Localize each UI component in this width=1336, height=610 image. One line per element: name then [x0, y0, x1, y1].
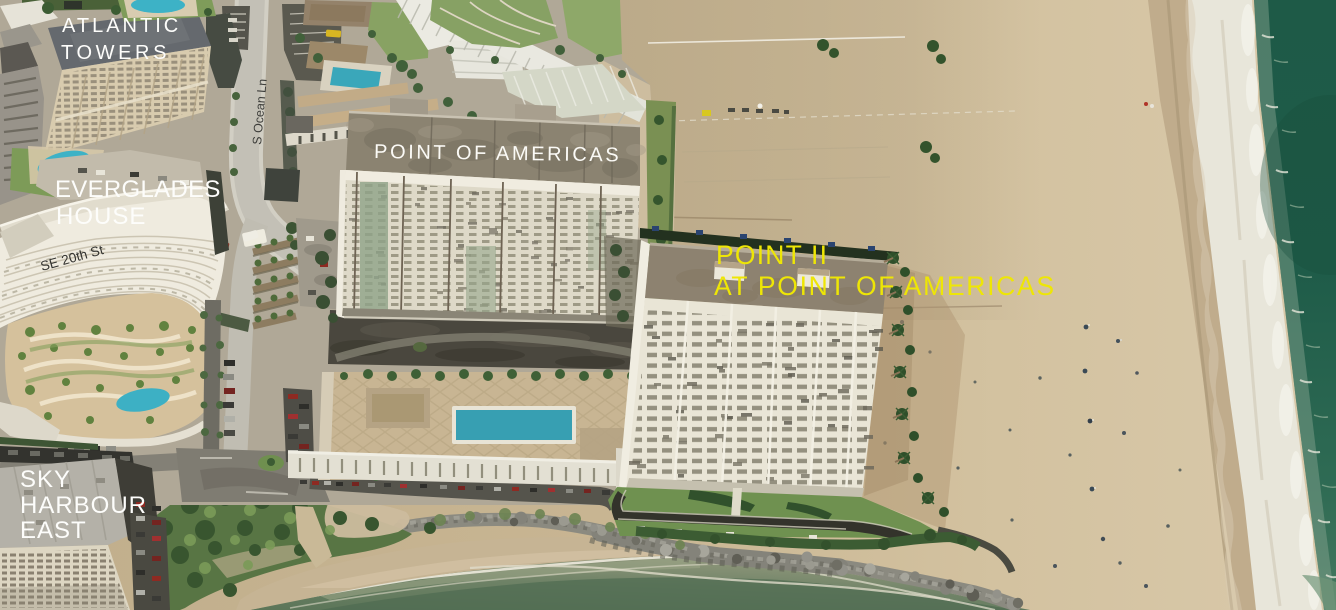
- svg-text:HOUSE: HOUSE: [56, 203, 146, 230]
- svg-text:SKY: SKY: [20, 466, 71, 493]
- svg-text:EAST: EAST: [20, 517, 87, 544]
- svg-text:EVERGLADES: EVERGLADES: [55, 176, 221, 203]
- svg-text:AT POINT OF AMERICAS: AT POINT OF AMERICAS: [714, 271, 1056, 301]
- svg-text:POINT II: POINT II: [716, 240, 828, 270]
- svg-text:HARBOUR: HARBOUR: [20, 492, 147, 519]
- svg-text:POINT OF AMERICAS: POINT OF AMERICAS: [374, 141, 621, 166]
- svg-text:TOWERS: TOWERS: [61, 42, 170, 64]
- svg-text:ATLANTIC: ATLANTIC: [62, 15, 181, 37]
